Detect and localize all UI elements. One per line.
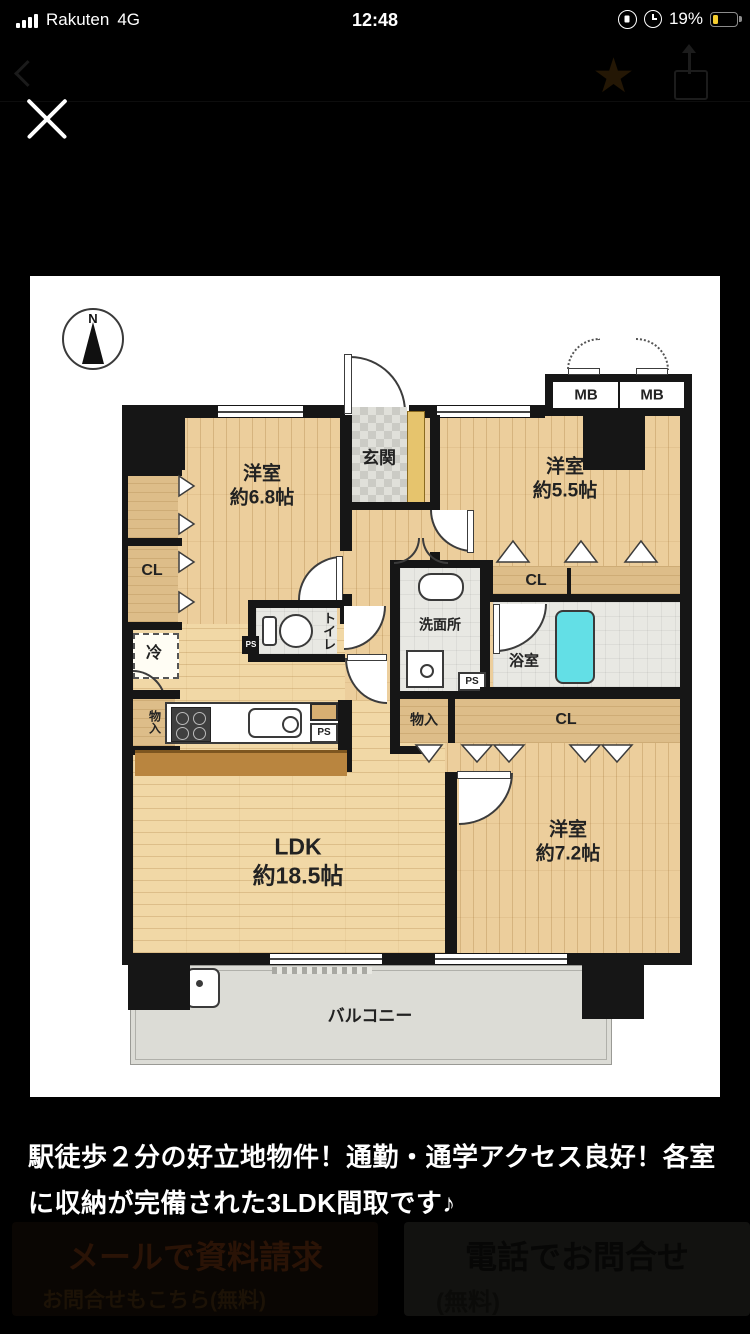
door-swing-arc xyxy=(567,338,600,370)
bathroom-label: 浴室 xyxy=(509,653,539,672)
faucet-icon xyxy=(282,716,299,733)
mail-inquiry-sublabel: お問合せもこちら(無料) xyxy=(42,1284,378,1314)
wall xyxy=(390,691,692,699)
battery-icon xyxy=(710,12,738,27)
wall xyxy=(122,622,182,630)
drain xyxy=(196,980,203,987)
closet-label: CL xyxy=(555,710,576,730)
back-chevron-icon[interactable] xyxy=(14,60,41,87)
phone-inquiry-sublabel: (無料) xyxy=(436,1282,750,1317)
wall xyxy=(430,415,440,510)
pipe-space-label: PS xyxy=(465,676,478,689)
wall xyxy=(340,415,352,551)
favorite-star-icon[interactable]: ★ xyxy=(592,48,635,104)
room-label: 洋室約7.2帖 xyxy=(536,818,600,866)
mail-inquiry-button[interactable]: メールで資料請求 お問合せもこちら(無料) xyxy=(12,1222,378,1316)
phone-inquiry-label: 電話でお問合せ xyxy=(404,1232,750,1278)
alarm-icon xyxy=(644,10,662,28)
entrance-label: 玄関 xyxy=(362,447,396,468)
caption-line: に収納が完備された3LDK間取です♪ xyxy=(28,1180,728,1226)
stove-icon xyxy=(171,707,211,742)
room-label: LDK約18.5帖 xyxy=(253,832,344,890)
washbasin-icon xyxy=(418,573,464,601)
door-leaf xyxy=(493,604,500,654)
wall xyxy=(122,538,182,546)
toilet-label: トイレ xyxy=(320,612,336,651)
compass-icon: N xyxy=(62,308,124,370)
wall xyxy=(485,594,680,602)
rotation-lock-icon xyxy=(618,10,637,29)
closet-floor xyxy=(493,566,680,594)
wall xyxy=(248,600,345,608)
wall xyxy=(680,408,692,965)
washroom-label: 洗面所 xyxy=(419,616,461,634)
door-leaf xyxy=(336,556,343,601)
wall xyxy=(128,957,190,1010)
shoe-cabinet xyxy=(407,411,425,509)
storage-label: 物入 xyxy=(147,710,162,734)
slop-sink-icon xyxy=(186,968,220,1008)
divider xyxy=(0,101,750,102)
meter-box-label: MB xyxy=(574,387,597,406)
wall xyxy=(445,772,457,953)
room-label: 洋室約6.8帖 xyxy=(230,462,294,510)
door-swing-arc xyxy=(636,338,669,370)
divider xyxy=(618,382,620,408)
room-label: 洋室約5.5帖 xyxy=(533,455,597,503)
fridge-label: 冷 xyxy=(146,644,162,664)
door-swing-arc xyxy=(350,356,406,412)
folding-door-icon xyxy=(413,743,445,765)
bathtub-icon xyxy=(555,610,595,684)
wall xyxy=(582,955,644,1019)
battery-percent-label: 19% xyxy=(669,9,703,29)
pipe-space-label: PS xyxy=(246,640,257,650)
wall xyxy=(248,654,345,662)
closet-label: CL xyxy=(525,571,546,591)
wall xyxy=(122,468,182,476)
divider xyxy=(448,699,455,743)
door-leaf xyxy=(467,510,474,553)
wall xyxy=(390,560,400,701)
caption-line: 駅徒歩２分の好立地物件！通勤・通学アクセス良好！各室 xyxy=(28,1134,728,1180)
folding-door-icon xyxy=(176,474,196,624)
phone-screen: Rakuten 4G 12:48 19% ★ N xyxy=(0,0,750,1334)
mail-inquiry-label: メールで資料請求 xyxy=(12,1232,378,1278)
door-leaf xyxy=(347,654,387,661)
balcony-label: バルコニー xyxy=(328,1005,413,1026)
close-icon[interactable] xyxy=(20,92,74,146)
wall xyxy=(345,502,433,510)
divider xyxy=(567,568,571,594)
window-sill xyxy=(272,967,372,974)
closet-floor xyxy=(128,476,178,538)
folding-door-icon xyxy=(458,743,638,765)
status-bar: Rakuten 4G 12:48 19% xyxy=(0,0,750,44)
closet-floor xyxy=(128,546,178,622)
toilet-tank xyxy=(262,616,277,646)
meter-box-label: MB xyxy=(640,387,663,406)
closet-label: CL xyxy=(141,561,162,581)
storage-label: 物入 xyxy=(410,711,438,729)
wall xyxy=(390,691,400,753)
folding-door-icon xyxy=(493,538,680,564)
phone-inquiry-button[interactable]: 電話でお問合せ (無料) xyxy=(404,1222,750,1316)
pipe-space-label: PS xyxy=(317,727,330,740)
counter-front xyxy=(135,750,347,776)
door-leaf xyxy=(344,354,352,414)
listing-caption: 駅徒歩２分の好立地物件！通勤・通学アクセス良好！各室 に収納が完備された3LDK… xyxy=(28,1134,728,1226)
wall xyxy=(128,690,180,699)
share-icon[interactable] xyxy=(674,44,708,100)
toilet-icon xyxy=(279,614,313,648)
counter-cabinet xyxy=(310,703,338,721)
washer-drain xyxy=(420,664,434,678)
door-leaf xyxy=(457,771,511,779)
floorplan-image[interactable]: N MB MB 玄関 xyxy=(30,276,720,1097)
